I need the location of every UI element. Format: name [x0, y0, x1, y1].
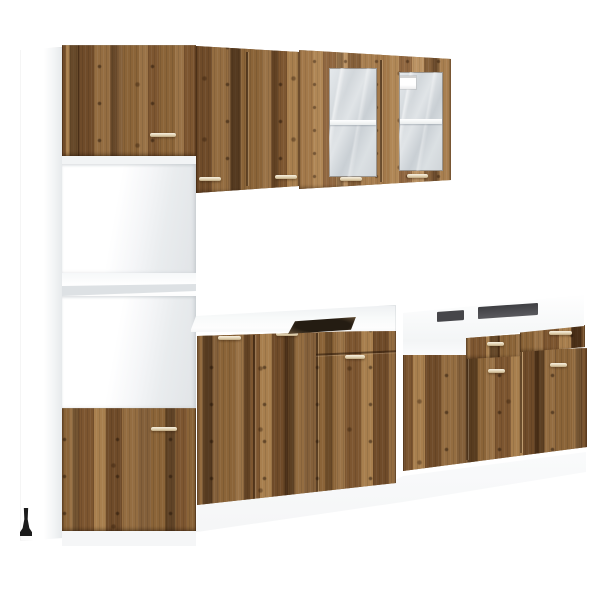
glass-pane-right	[399, 72, 443, 171]
base-sink-left-door-handle-icon	[488, 369, 505, 373]
tall-top-door-handle-icon	[150, 133, 176, 137]
base-middle-door-seam-1	[253, 335, 255, 500]
glass-shelf-right	[400, 119, 442, 124]
base-sink-drawer-left-handle-icon	[487, 342, 504, 346]
wall-cabinet-glass	[299, 50, 451, 189]
wall-cabinet-solid	[196, 45, 299, 193]
tall-cabinet-shelf	[62, 273, 196, 296]
base-middle-door-seam-2	[316, 333, 318, 498]
base-sink-top-opening-left	[437, 310, 464, 322]
tall-bottom-door-handle-icon	[151, 427, 177, 431]
base-sink-door-seam-1	[466, 350, 468, 460]
wall-glass-left-handle-icon	[340, 177, 362, 181]
tall-cabinet-open-compartment-upper	[62, 164, 196, 273]
tall-cabinet-side-panel	[20, 47, 63, 541]
base-middle-small-door-handle-icon	[345, 355, 365, 359]
tall-cabinet-open-compartment-lower	[62, 296, 196, 408]
base-sink-door-seam-2	[520, 348, 522, 453]
wall-solid-door-seam	[246, 52, 248, 186]
wall-glass-right-handle-icon	[407, 174, 428, 178]
tall-cabinet-front	[62, 45, 196, 546]
base-middle-left-door-handle-icon	[218, 336, 241, 340]
wall-solid-right-handle-icon	[275, 175, 297, 179]
wall-glass-door-seam	[380, 60, 382, 182]
tall-cabinet-plinth	[62, 531, 196, 546]
base-cabinet-middle	[190, 305, 396, 535]
wall-solid-left-handle-icon	[199, 177, 221, 181]
base-sink-drawer-left	[466, 334, 521, 359]
tall-cabinet-top-door	[62, 45, 196, 156]
kitchen-cabinet-set-photo	[0, 0, 600, 600]
label-sticker	[400, 76, 416, 89]
glass-shelf-left	[330, 120, 376, 125]
tall-cabinet	[20, 45, 196, 546]
base-sink-drawer-right-handle-icon	[549, 331, 572, 335]
base-sink-right-door-handle-icon	[550, 363, 567, 367]
glass-pane-left	[329, 68, 377, 177]
base-sink-doors	[403, 348, 587, 478]
tall-cabinet-bottom-door	[62, 408, 196, 531]
tall-cabinet-rail	[62, 156, 196, 164]
base-middle-fronts	[197, 305, 396, 510]
base-cabinet-sink	[401, 293, 586, 505]
